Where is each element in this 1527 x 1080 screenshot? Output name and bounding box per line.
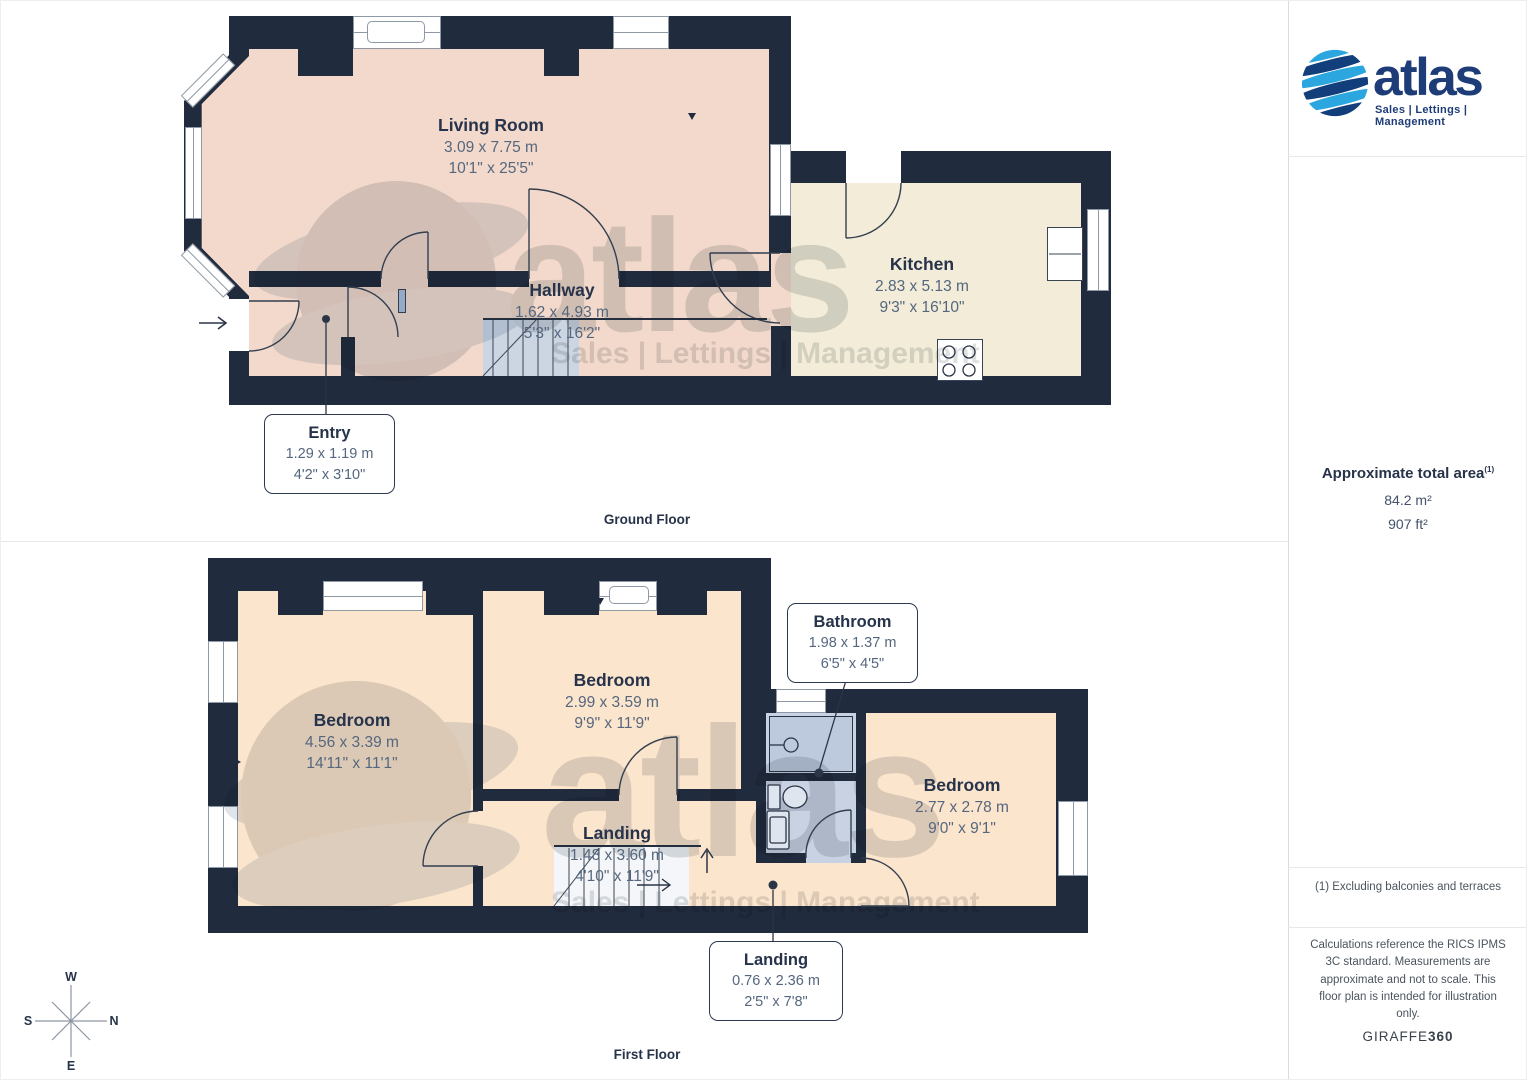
bedroom-right-label: Bedroom 2.77 x 2.78 m 9'0" x 9'1": [857, 774, 1067, 840]
entry-partition-wall: [341, 337, 355, 376]
room-dim-metric: 2.83 x 5.13 m: [812, 276, 1032, 298]
bathroom-window: [776, 689, 826, 713]
total-area-m2: 84.2 m²: [1288, 492, 1527, 508]
room-name: Bedroom: [242, 709, 462, 732]
bathroom-inner-wall: [766, 773, 856, 781]
room-name: Entry: [267, 423, 392, 444]
wall-pier: [544, 49, 579, 76]
room-name: Bathroom: [790, 612, 915, 633]
room-dim-imperial: 4'10" x 11'9": [517, 866, 717, 888]
room-dim-imperial: 6'5" x 4'5": [790, 654, 915, 674]
room-name: Bedroom: [502, 669, 722, 692]
credit-suffix: 360: [1428, 1029, 1454, 1044]
door-opening: [856, 863, 866, 906]
disclaimer-text: Calculations reference the RICS IPMS 3C …: [1310, 937, 1506, 1023]
corridor-floor-area: [756, 863, 866, 906]
compass-top: W: [65, 971, 77, 984]
room-dim-imperial: 9'9" x 11'9": [502, 713, 722, 735]
room-dim-imperial: 9'0" x 9'1": [857, 818, 1067, 840]
compass-left: S: [24, 1014, 32, 1028]
room-name: Hallway: [462, 279, 662, 302]
compass-bottom: E: [67, 1059, 75, 1071]
wall-pier: [278, 591, 323, 615]
entrance-arrow: [199, 317, 226, 329]
total-area-heading: Approximate total area(1): [1288, 465, 1527, 482]
room-dim-imperial: 2'5" x 7'8": [712, 992, 840, 1012]
door-opening: [473, 811, 483, 866]
room-name: Kitchen: [812, 253, 1032, 276]
bedroom-left-label: Bedroom 4.56 x 3.39 m 14'11" x 11'1": [242, 709, 462, 775]
landing-divider-wall: [483, 789, 741, 801]
compass-lines: [35, 985, 107, 1057]
atlas-logo-tagline: Sales | Lettings | Management: [1375, 104, 1526, 128]
room-dim-metric: 4.56 x 3.39 m: [242, 732, 462, 754]
wall-pier: [544, 591, 599, 615]
kitchen-label: Kitchen 2.83 x 5.13 m 9'3" x 16'10": [812, 253, 1032, 319]
bay-window-middle: [185, 127, 202, 219]
atlas-logo-text: atlas: [1373, 51, 1481, 104]
total-area-heading-text: Approximate total area: [1322, 465, 1485, 482]
bathroom-callout: Bathroom 1.98 x 1.37 m 6'5" x 4'5": [787, 603, 918, 683]
landing-callout: Landing 0.76 x 2.36 m 2'5" x 7'8": [709, 941, 843, 1021]
window: [770, 144, 791, 216]
stove: [937, 339, 983, 381]
room-dim-metric: 1.29 x 1.19 m: [267, 444, 392, 464]
room-dim-imperial: 4'2" x 3'10": [267, 465, 392, 485]
room-dim-imperial: 5'3" x 16'2": [462, 323, 662, 345]
room-name: Landing: [712, 950, 840, 971]
wall-pier: [298, 49, 353, 76]
room-dim-imperial: 9'3" x 16'10": [812, 297, 1032, 319]
bathroom-wall: [756, 713, 766, 863]
giraffe360-credit: GIRAFFE360: [1288, 1029, 1527, 1044]
front-door-opening: [229, 299, 249, 351]
window: [208, 806, 238, 868]
sidebar-divider: [1288, 927, 1527, 928]
area-footnote: (1) Excluding balconies and terraces: [1288, 879, 1527, 896]
window: [1087, 209, 1109, 291]
floorplan-page: atlas Sales | Lettings | Management atla…: [0, 0, 1527, 1080]
room-dim-metric: 1.62 x 4.93 m: [462, 302, 662, 324]
sidebar: [1288, 1, 1527, 1080]
back-door-opening: [846, 151, 901, 183]
wall-pier: [426, 591, 473, 615]
hallway-label: Hallway 1.62 x 4.93 m 5'3" x 16'2": [462, 279, 662, 345]
room-dim-metric: 3.09 x 7.75 m: [371, 137, 611, 159]
atlas-globe-icon: [1301, 49, 1369, 117]
room-dim-metric: 2.99 x 3.59 m: [502, 692, 722, 714]
room-dim-metric: 1.48 x 3.60 m: [517, 845, 717, 867]
room-dim-metric: 1.98 x 1.37 m: [790, 633, 915, 653]
compass-rose: W S N E: [21, 971, 121, 1071]
total-area-ft2: 907 ft²: [1288, 516, 1527, 532]
window-sill: [609, 586, 649, 604]
room-dim-metric: 0.76 x 2.36 m: [712, 971, 840, 991]
room-dim-imperial: 10'1" x 25'5": [371, 158, 611, 180]
window-sill: [367, 21, 425, 43]
door-opening: [381, 271, 428, 287]
radiator: [398, 289, 406, 313]
living-room-label: Living Room 3.09 x 7.75 m 10'1" x 25'5": [371, 114, 611, 180]
sidebar-divider: [1288, 867, 1527, 868]
sidebar-divider: [1288, 156, 1527, 157]
window: [613, 16, 669, 49]
door-opening: [619, 789, 677, 801]
fridge: [1047, 227, 1083, 281]
room-name: Landing: [517, 822, 717, 845]
room-name: Living Room: [371, 114, 611, 137]
ground-floor-title: Ground Floor: [547, 512, 747, 527]
first-floor-title: First Floor: [547, 1047, 747, 1062]
globe-stripes: [1301, 49, 1369, 117]
compass-right: N: [109, 1014, 118, 1028]
door-opening: [771, 253, 791, 326]
wall-pier: [657, 591, 707, 615]
shower: [769, 716, 853, 772]
footnote-marker: (1): [1484, 465, 1494, 474]
door-opening: [806, 853, 851, 863]
room-dim-imperial: 14'11" x 11'1": [242, 753, 462, 775]
landing-label: Landing 1.48 x 3.60 m 4'10" x 11'9": [517, 822, 717, 888]
room-name: Bedroom: [857, 774, 1067, 797]
entry-callout: Entry 1.29 x 1.19 m 4'2" x 3'10": [264, 414, 395, 494]
bedroom-middle-label: Bedroom 2.99 x 3.59 m 9'9" x 11'9": [502, 669, 722, 735]
window: [208, 641, 238, 703]
window: [323, 581, 423, 611]
room-dim-metric: 2.77 x 2.78 m: [857, 797, 1067, 819]
credit-name: GIRAFFE: [1362, 1029, 1428, 1044]
floor-divider-line: [1, 541, 1288, 542]
